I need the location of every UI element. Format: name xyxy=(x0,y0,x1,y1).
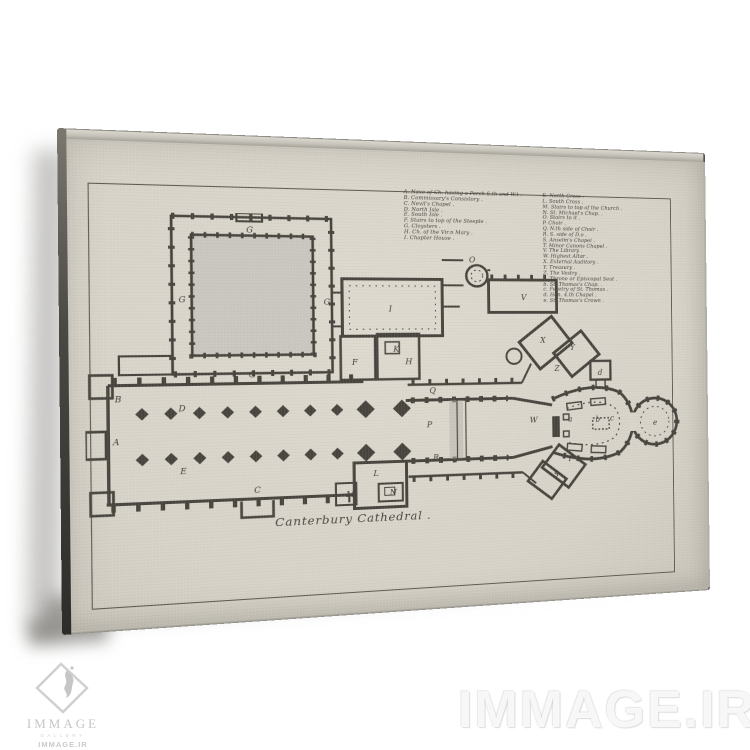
plan-label-F: F xyxy=(351,359,358,368)
plan-label-N: N xyxy=(389,489,398,498)
plan-label-b: b xyxy=(595,416,600,425)
plan-label-E: E xyxy=(179,468,187,477)
logo-domain: IMMAGE.IR xyxy=(8,740,118,749)
plan-label-I: I xyxy=(388,305,393,314)
plan-label-H: H xyxy=(404,358,412,367)
logo-brand: IMMAGE xyxy=(8,716,118,732)
plan-label-Q: Q xyxy=(429,387,436,396)
plan-label-W: W xyxy=(530,416,538,425)
plan-label-S: S xyxy=(554,471,559,480)
plan-label-c: c xyxy=(610,415,614,423)
plan-label-R: R xyxy=(432,454,439,463)
plan-label-L: L xyxy=(373,470,379,479)
watermark-logo: IMMAGE GALLERY IMMAGE.IR xyxy=(8,658,118,749)
plan-label-B: B xyxy=(114,396,122,405)
watermark-text: IMMAGE.IR xyxy=(458,680,748,740)
plan-label-O: O xyxy=(469,256,476,265)
plan-label-Z: Z xyxy=(554,365,561,374)
plan-label-a: a xyxy=(568,416,572,425)
plan-label-V: V xyxy=(521,294,528,303)
plan-label-M: M xyxy=(345,490,355,499)
plan-label-G: G xyxy=(249,371,256,380)
plan-label-Y: Y xyxy=(570,344,576,352)
plan-label-d: d xyxy=(598,369,603,377)
plan-label-e: e xyxy=(653,419,657,427)
plan-label-D: D xyxy=(178,405,186,414)
plan-label-A: A xyxy=(112,439,120,449)
plan-label-G: G xyxy=(246,226,253,235)
cathedral-floor-plan: GGGGIOVBADECFHKLMNPQRWXYZTSabcde xyxy=(83,210,690,546)
print-front-face: A. Nave of Ch. having a Porch S.th and W… xyxy=(66,139,708,631)
plan-label-P: P xyxy=(426,421,433,430)
logo-diamond-flame-icon xyxy=(31,658,95,716)
plan-label-C: C xyxy=(254,486,261,495)
canvas-print: A. Nave of Ch. having a Porch S.th and W… xyxy=(57,128,710,635)
plan-label-G: G xyxy=(324,298,331,307)
plan-label-X: X xyxy=(539,337,546,346)
logo-subtitle: GALLERY xyxy=(8,733,118,738)
plan-label-G: G xyxy=(178,296,185,305)
